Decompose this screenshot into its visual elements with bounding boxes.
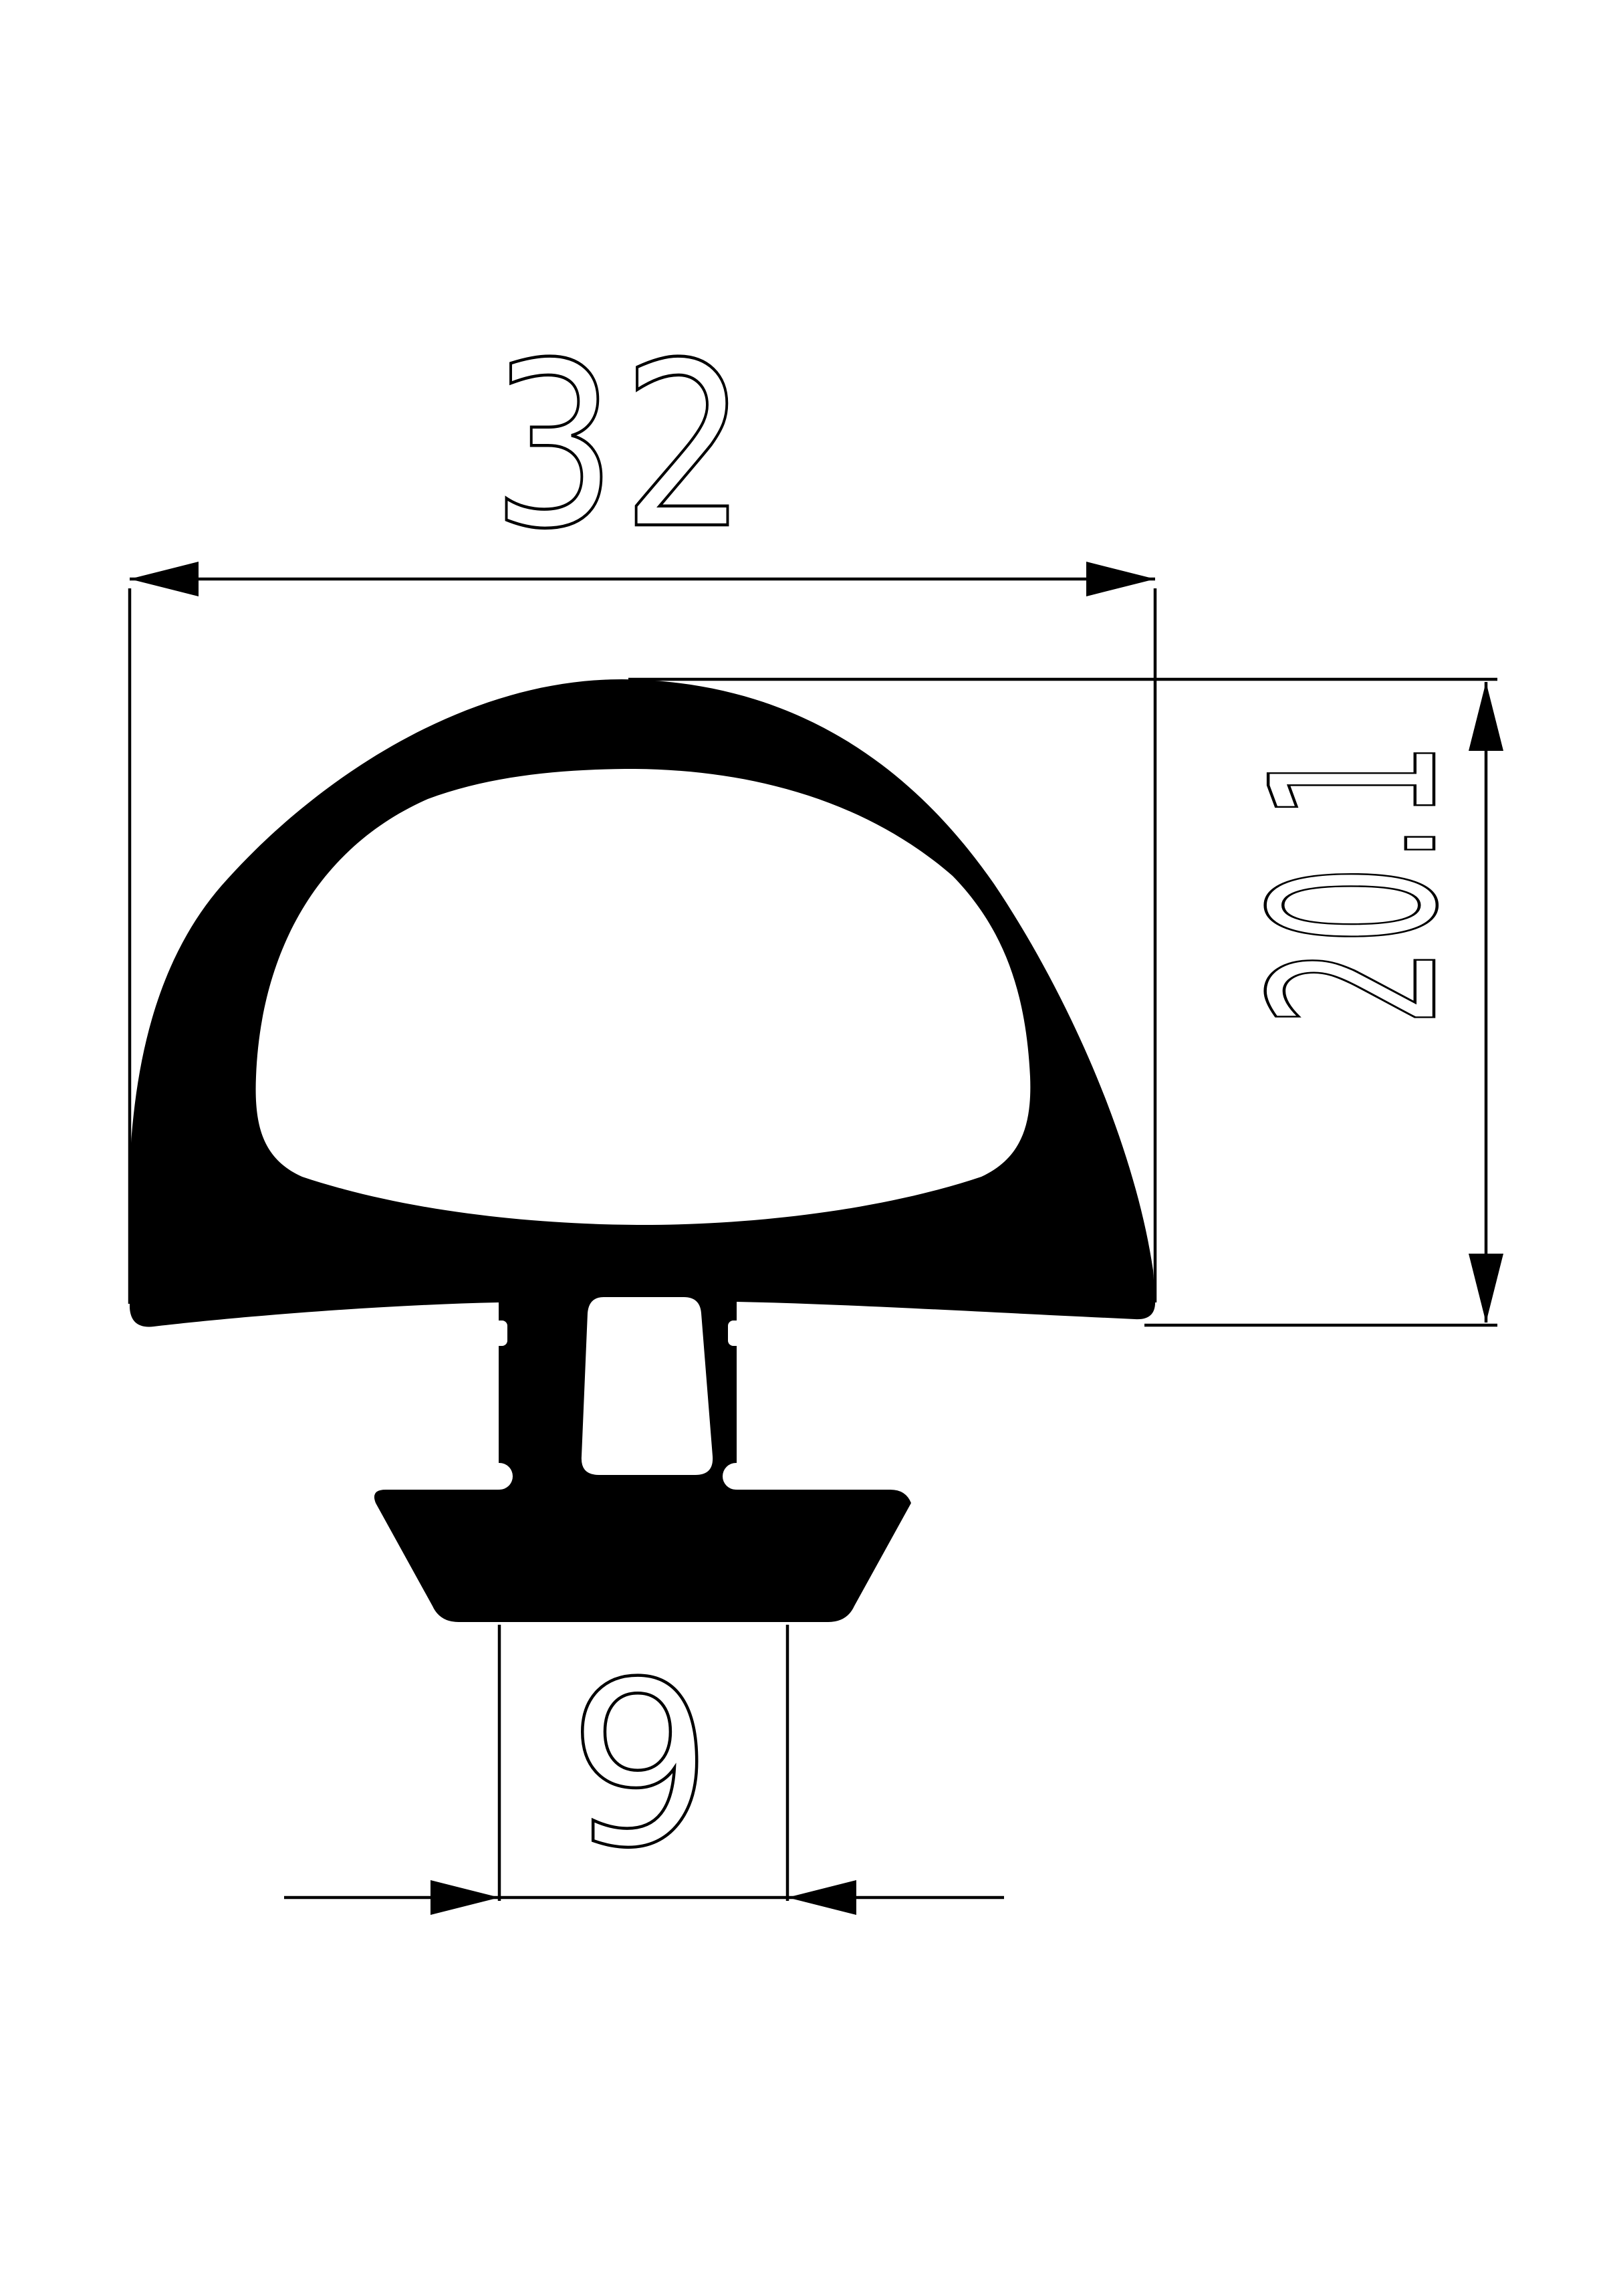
width-arrow-left-icon — [130, 562, 199, 596]
dimension-foot-width: 9 — [284, 1625, 1004, 1915]
foot-dimension-value: 9 — [568, 1633, 718, 1898]
neck-tab-notch-left — [492, 1321, 507, 1346]
neck-notch-right — [723, 1463, 749, 1490]
height-arrow-down-icon — [1469, 1254, 1503, 1323]
technical-drawing-page: 32 20.1 9 — [0, 0, 1607, 2296]
neck-notch-left — [486, 1463, 513, 1490]
foot-arrow-left-icon — [787, 1880, 856, 1915]
height-dimension-value: 20.1 — [1223, 739, 1488, 1026]
neck-tab-notch-right — [728, 1321, 743, 1346]
width-dimension-value: 32 — [491, 314, 752, 579]
width-arrow-right-icon — [1086, 562, 1155, 596]
drawing-canvas: 32 20.1 9 — [0, 0, 1607, 2296]
neck-cavity — [582, 1297, 713, 1475]
foot-arrow-right-icon — [430, 1880, 499, 1915]
seal-profile — [129, 679, 1156, 1622]
